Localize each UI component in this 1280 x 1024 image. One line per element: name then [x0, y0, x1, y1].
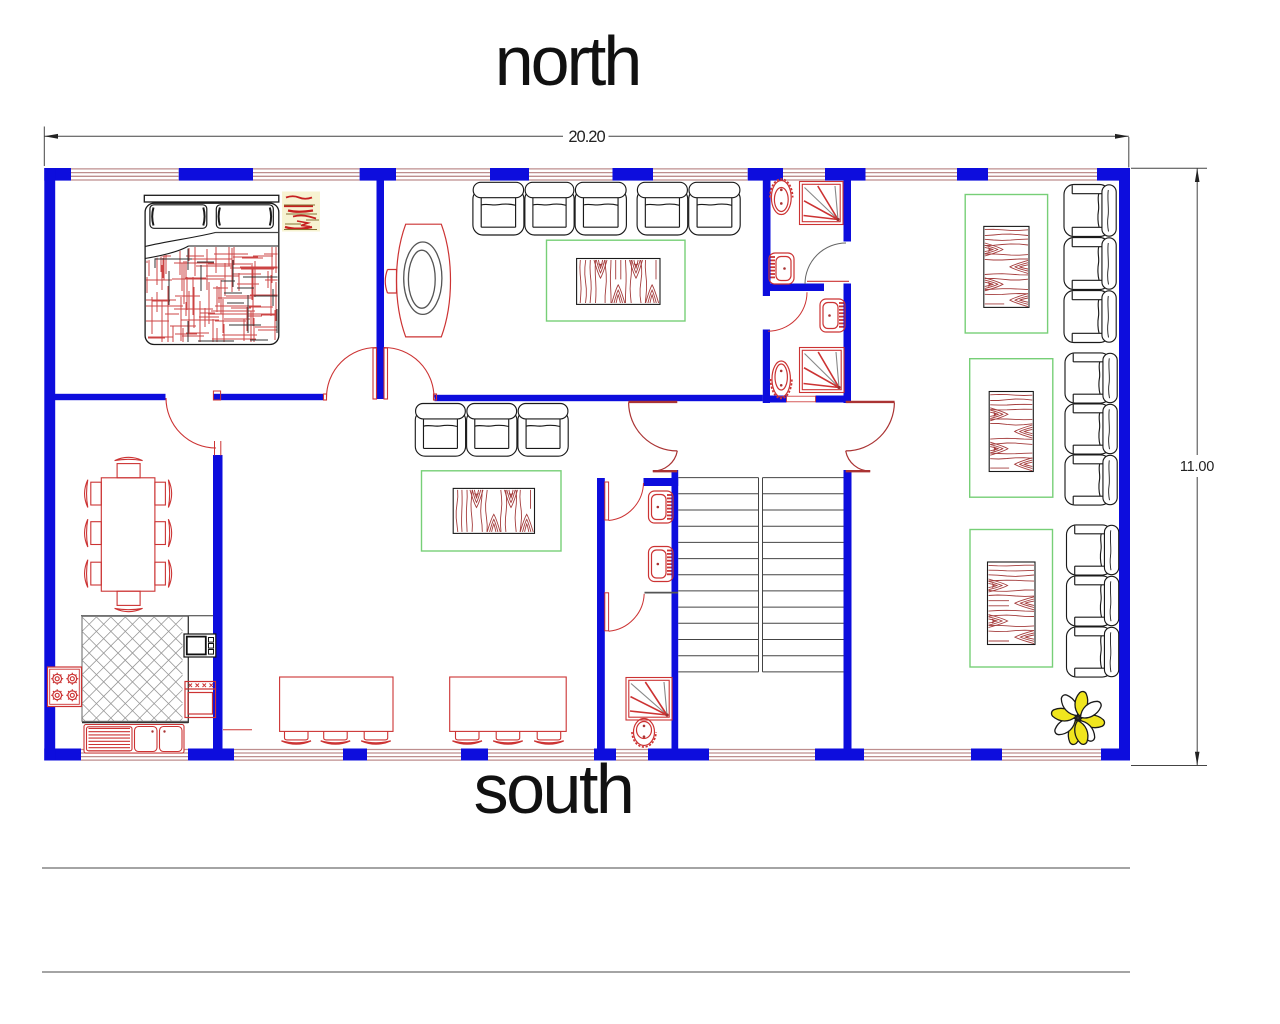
svg-text:south: south [474, 750, 633, 828]
svg-text:20.20: 20.20 [568, 128, 605, 146]
svg-text:11.00: 11.00 [1180, 459, 1214, 475]
svg-text:north: north [495, 22, 640, 100]
